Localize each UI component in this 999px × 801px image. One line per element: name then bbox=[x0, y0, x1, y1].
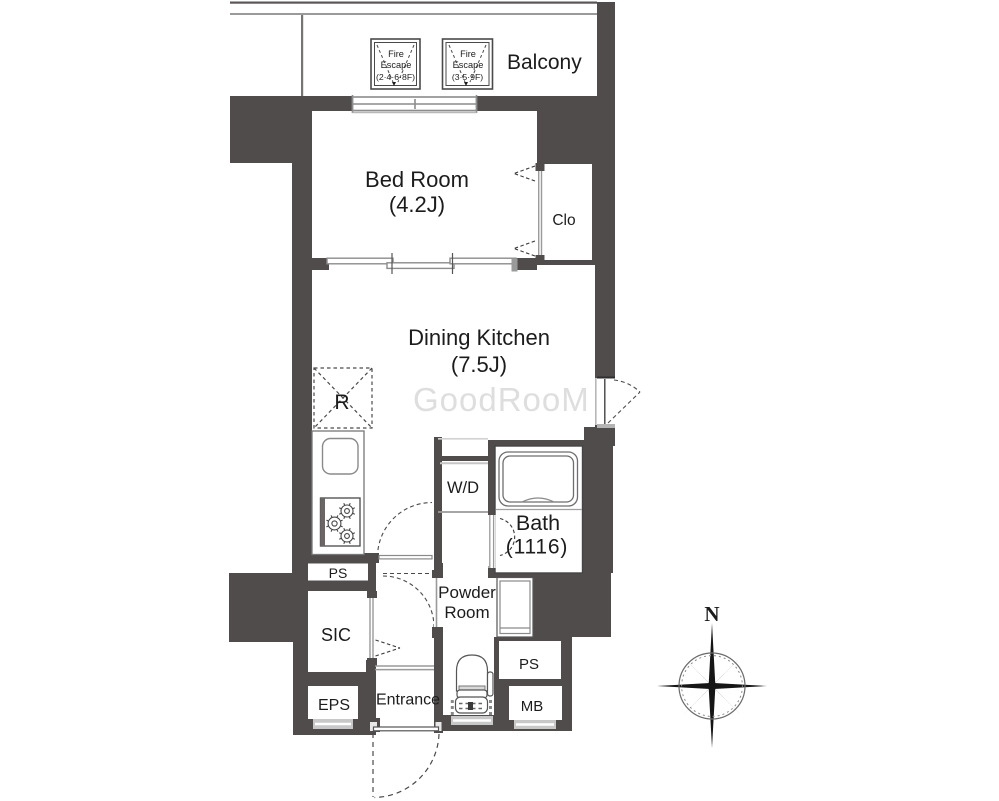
svg-text:Balcony: Balcony bbox=[507, 51, 582, 74]
svg-text:SIC: SIC bbox=[321, 625, 351, 645]
svg-text:PS: PS bbox=[519, 656, 539, 673]
svg-text:(7.5J): (7.5J) bbox=[451, 352, 507, 377]
svg-text:N: N bbox=[704, 602, 719, 626]
svg-text:(4.2J): (4.2J) bbox=[389, 192, 445, 217]
svg-text:Fire: Fire bbox=[460, 49, 476, 59]
svg-text:EPS: EPS bbox=[318, 697, 350, 714]
svg-text:(3·5·9F): (3·5·9F) bbox=[452, 72, 483, 82]
svg-text:Bath: Bath bbox=[516, 511, 560, 535]
svg-text:W/D: W/D bbox=[447, 479, 479, 497]
svg-text:(1116): (1116) bbox=[506, 536, 568, 559]
svg-text:(2·4·6·8F): (2·4·6·8F) bbox=[376, 72, 415, 82]
svg-text:Bed Room: Bed Room bbox=[365, 167, 469, 192]
svg-text:Clo: Clo bbox=[552, 212, 575, 229]
svg-text:R: R bbox=[334, 391, 349, 414]
svg-text:GoodRooM: GoodRooM bbox=[413, 381, 590, 418]
svg-text:Entrance: Entrance bbox=[376, 692, 440, 709]
svg-text:PS: PS bbox=[329, 565, 348, 581]
svg-text:MB: MB bbox=[521, 698, 544, 715]
svg-text:Dining Kitchen: Dining Kitchen bbox=[408, 325, 550, 350]
svg-text:Escape: Escape bbox=[453, 60, 484, 70]
svg-text:Fire: Fire bbox=[388, 49, 404, 59]
svg-text:Escape: Escape bbox=[381, 60, 412, 70]
svg-text:Powder: Powder bbox=[438, 583, 496, 602]
svg-text:Room: Room bbox=[444, 603, 489, 622]
